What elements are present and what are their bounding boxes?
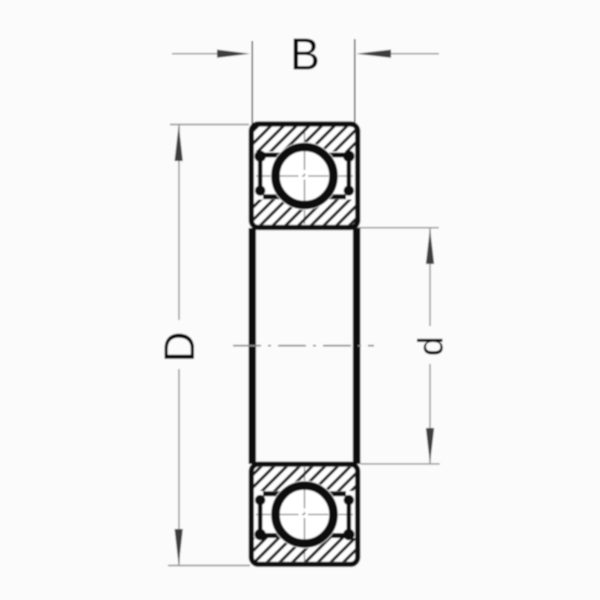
svg-text:D: D (157, 331, 204, 362)
svg-text:B: B (290, 31, 320, 80)
svg-text:d: d (412, 337, 451, 356)
